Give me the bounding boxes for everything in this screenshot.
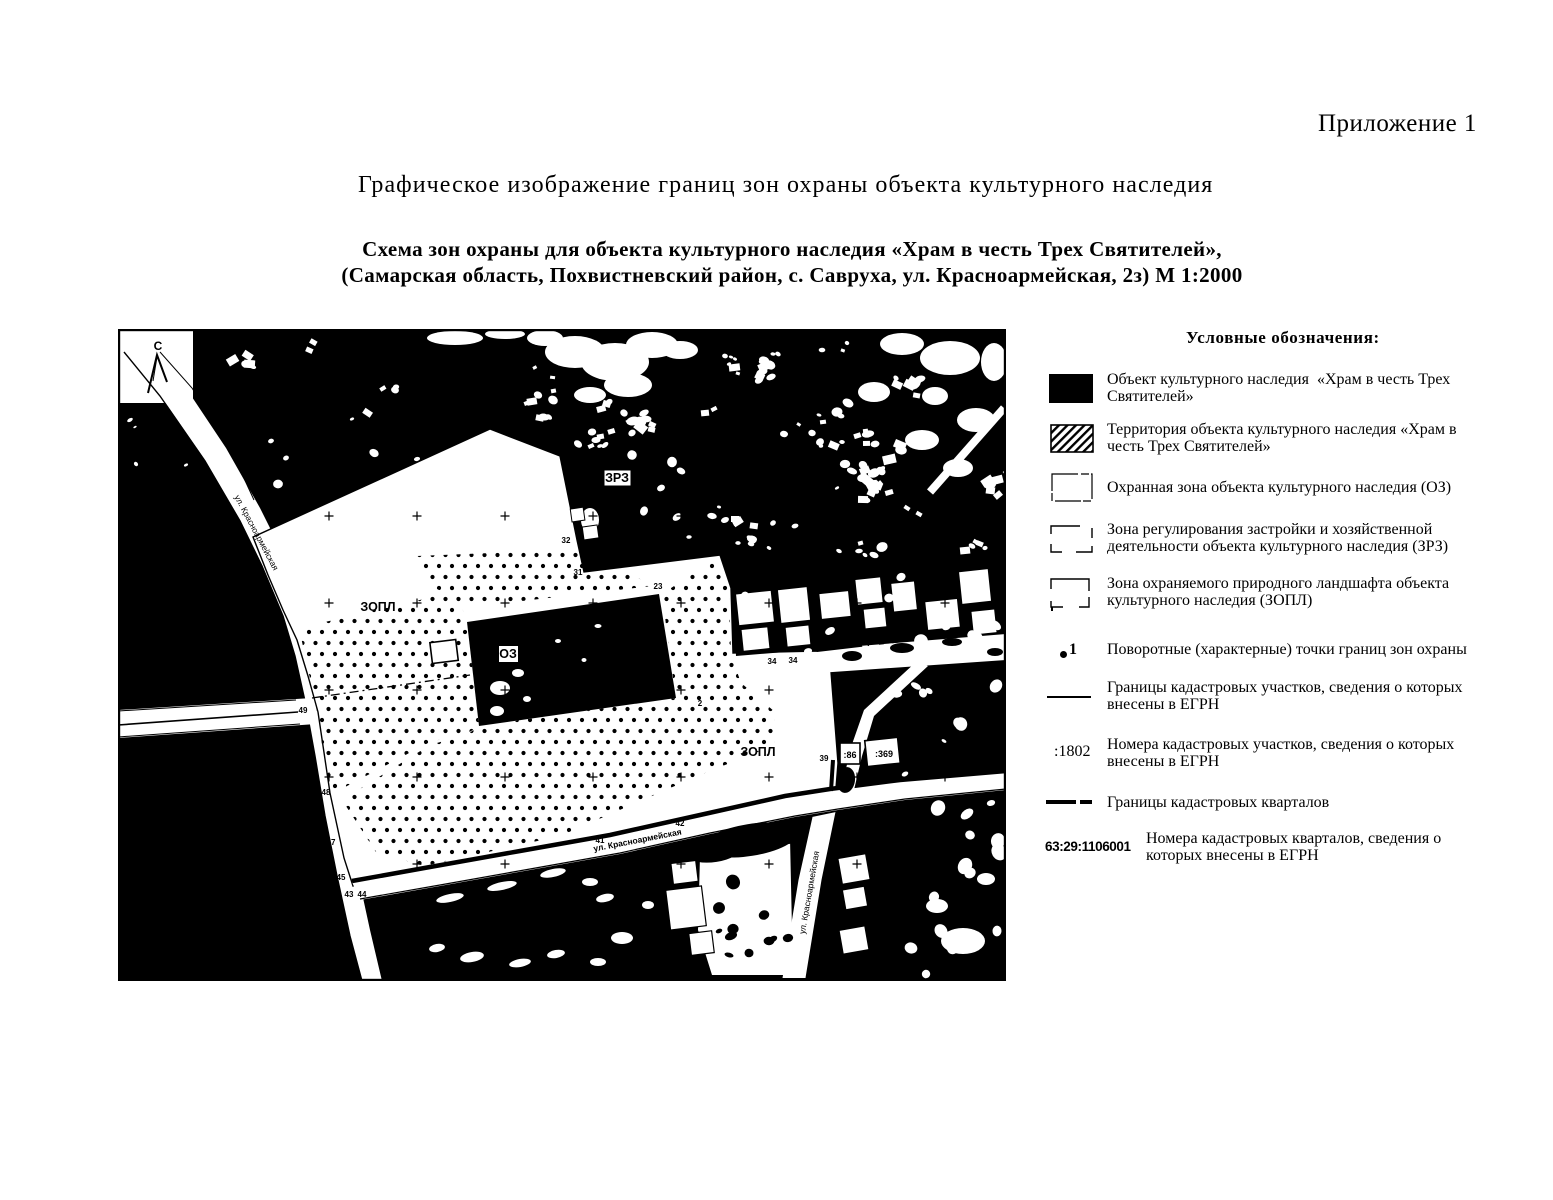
svg-text:ЗОПЛ: ЗОПЛ xyxy=(740,745,775,759)
svg-text:31: 31 xyxy=(574,568,583,577)
svg-text:49: 49 xyxy=(299,706,308,715)
svg-text:39: 39 xyxy=(820,754,829,763)
svg-text:23: 23 xyxy=(654,582,663,591)
svg-text::86: :86 xyxy=(843,750,856,760)
svg-text:41: 41 xyxy=(596,836,605,845)
svg-text:ЗОПЛ: ЗОПЛ xyxy=(360,600,395,614)
svg-text::369: :369 xyxy=(875,749,893,759)
svg-text:53: 53 xyxy=(254,596,263,605)
svg-text:2: 2 xyxy=(698,699,703,708)
svg-text:43: 43 xyxy=(345,890,354,899)
svg-text:50: 50 xyxy=(294,683,303,692)
svg-text:34: 34 xyxy=(768,657,777,666)
svg-text:С: С xyxy=(154,339,163,353)
svg-text:34: 34 xyxy=(789,656,798,665)
svg-text:48: 48 xyxy=(322,788,331,797)
svg-text:44: 44 xyxy=(358,890,367,899)
svg-text:47: 47 xyxy=(327,838,336,847)
svg-text:ОЗ: ОЗ xyxy=(499,647,517,661)
svg-text:42: 42 xyxy=(676,819,685,828)
svg-text:32: 32 xyxy=(562,536,571,545)
svg-text:ЗРЗ: ЗРЗ xyxy=(605,471,629,485)
svg-text:45: 45 xyxy=(337,873,346,882)
svg-text:44: 44 xyxy=(326,864,335,873)
